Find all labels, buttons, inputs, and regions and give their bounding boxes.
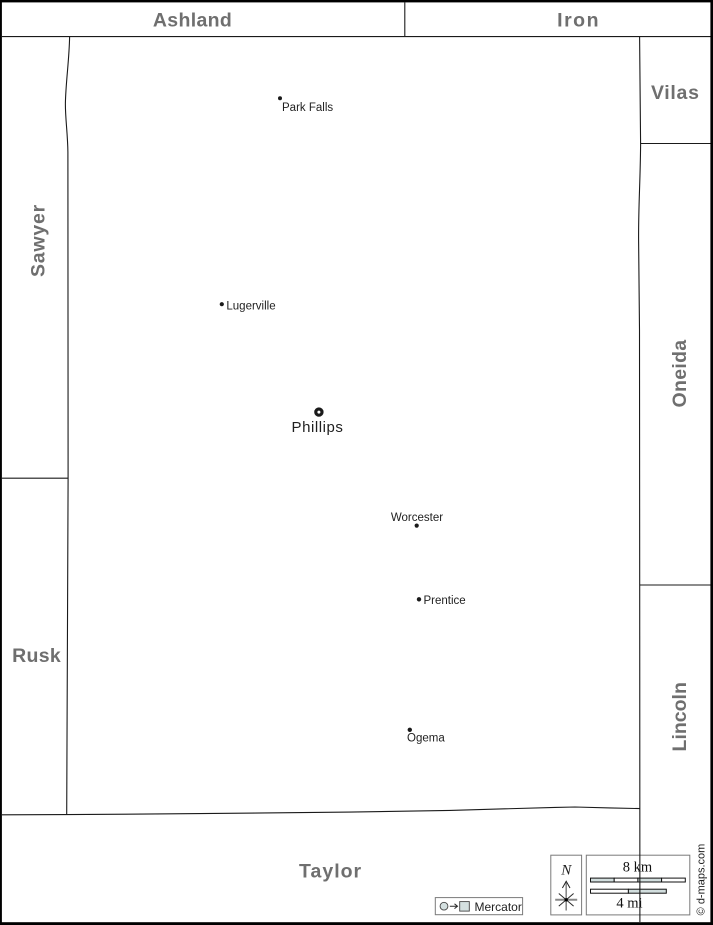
svg-text:Sawyer: Sawyer [28,204,50,277]
svg-text:Phillips: Phillips [292,419,344,436]
svg-text:Worcester: Worcester [391,512,443,524]
svg-text:Ogema: Ogema [407,733,445,745]
svg-text:Lincoln: Lincoln [669,682,691,751]
svg-text:N: N [560,862,572,878]
svg-text:Iron: Iron [557,10,600,32]
svg-text:Park Falls: Park Falls [282,102,333,114]
svg-text:Prentice: Prentice [424,595,466,607]
svg-text:Vilas: Vilas [651,82,700,104]
svg-text:Ashland: Ashland [153,10,232,32]
svg-text:Taylor: Taylor [299,861,362,883]
svg-text:4 mi: 4 mi [616,896,642,912]
svg-text:Rusk: Rusk [12,645,61,667]
svg-text:Lugerville: Lugerville [226,301,275,313]
svg-text:8 km: 8 km [623,860,653,876]
svg-text:© d-maps.com: © d-maps.com [696,844,708,916]
svg-text:Oneida: Oneida [669,340,691,408]
svg-text:Mercator: Mercator [475,900,522,914]
